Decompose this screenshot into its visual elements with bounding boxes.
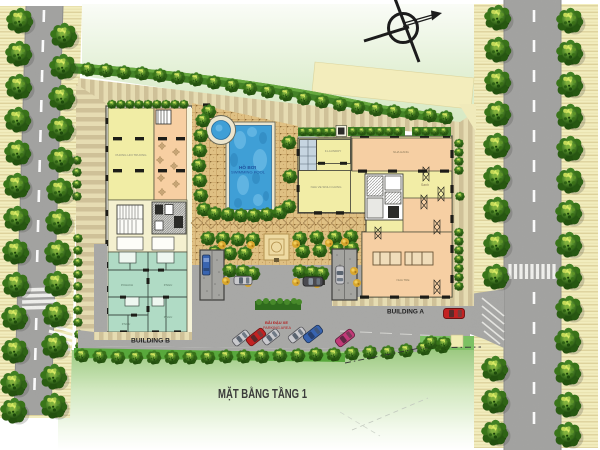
svg-text:MẶT BẰNG TẦNG 1: MẶT BẰNG TẦNG 1: [218, 386, 307, 401]
svg-text:NHA TRE: NHA TRE: [397, 278, 410, 282]
svg-text:PHONG HOI TRUONG: PHONG HOI TRUONG: [116, 153, 148, 157]
svg-text:BUILDING A: BUILDING A: [387, 309, 424, 316]
svg-text:P.NGU: P.NGU: [164, 315, 173, 319]
svg-text:P.NGU: P.NGU: [164, 283, 173, 287]
svg-text:SWIMMING POOL: SWIMMING POOL: [231, 171, 265, 175]
svg-text:NHA VE SINH CHUNG: NHA VE SINH CHUNG: [311, 185, 343, 189]
svg-text:F.LAUNDRY: F.LAUNDRY: [325, 149, 342, 153]
svg-text:BÃI ĐẬU XE: BÃI ĐẬU XE: [265, 320, 289, 325]
svg-text:NHA HANG: NHA HANG: [393, 150, 409, 154]
svg-text:P.NGU: P.NGU: [122, 322, 131, 326]
svg-text:HỒ BƠI: HỒ BƠI: [239, 164, 256, 170]
svg-text:BUILDING B: BUILDING B: [131, 338, 170, 345]
svg-text:P.KHACH: P.KHACH: [121, 283, 133, 287]
svg-text:PARKING AREA: PARKING AREA: [263, 326, 292, 330]
svg-text:Sanh: Sanh: [421, 183, 429, 187]
